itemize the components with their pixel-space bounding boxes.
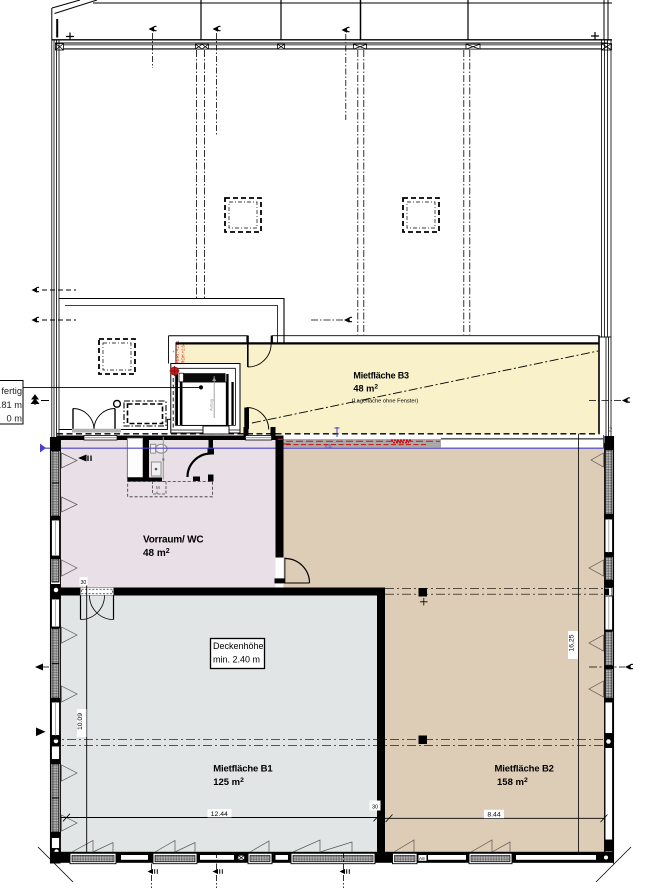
svg-text:fertig: fertig [1, 386, 22, 396]
svg-text:8.44: 8.44 [487, 812, 500, 819]
svg-text:10.09: 10.09 [77, 713, 84, 730]
svg-text:n.B.: n.B. [325, 443, 332, 448]
svg-text:Aufzug: Aufzug [210, 399, 214, 411]
svg-text:158 m2: 158 m2 [497, 777, 528, 788]
svg-text:A8: A8 [419, 856, 425, 861]
svg-text:+: + [172, 349, 175, 354]
svg-text:30: 30 [372, 805, 378, 811]
svg-text:Vorraum/ WC: Vorraum/ WC [143, 535, 203, 546]
svg-text:M: M [156, 485, 160, 490]
svg-text:Mietfläche B2: Mietfläche B2 [495, 764, 554, 775]
svg-text:min. 2.40 m: min. 2.40 m [213, 655, 260, 665]
svg-text:6: 6 [156, 491, 158, 495]
svg-text:16,25: 16,25 [569, 634, 576, 651]
svg-text:125 m2: 125 m2 [213, 777, 244, 788]
svg-text:Mietfläche B1: Mietfläche B1 [213, 764, 273, 775]
svg-text:30: 30 [81, 580, 87, 586]
svg-text:0 m: 0 m [7, 414, 23, 424]
svg-text:ROH +2.64: ROH +2.64 [181, 342, 186, 363]
svg-text:(Lagefläche ohne Fenster): (Lagefläche ohne Fenster) [352, 399, 419, 405]
svg-text:Mietfläche B3: Mietfläche B3 [353, 370, 409, 380]
svg-text:Deckenhöhe: Deckenhöhe [213, 641, 264, 651]
svg-text:48 m2: 48 m2 [143, 548, 170, 559]
svg-text:.81 m: .81 m [0, 400, 22, 410]
svg-text:12.44: 12.44 [211, 811, 228, 818]
